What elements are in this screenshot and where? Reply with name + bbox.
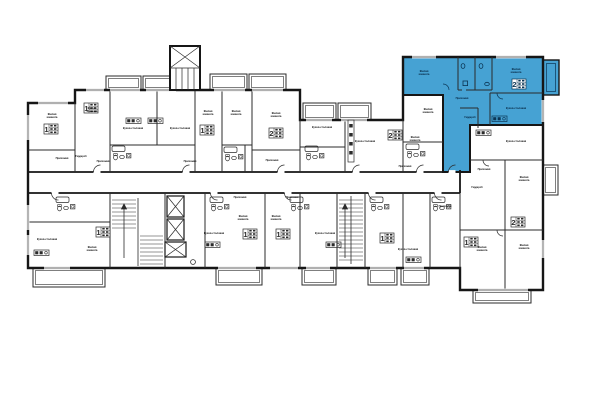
table-area-value (206, 129, 208, 131)
room-label-hallway: Прихожая (456, 96, 469, 100)
room-label-hallway: Прихожая (266, 158, 279, 162)
table-area-value (275, 129, 277, 131)
room-label-kitchen-dining: Кухня-столовая (312, 125, 333, 129)
room-label-living-room: комната (87, 249, 98, 252)
sink-icon (64, 206, 69, 209)
table-area-value (518, 83, 520, 85)
table-area-value (518, 87, 520, 89)
room-label-hallway: Прихожая (56, 156, 69, 160)
room-label-kitchen-dining: Кухня-столовая (506, 139, 527, 143)
stove-icon (332, 243, 335, 246)
table-area-value (386, 234, 388, 236)
room-label-wardrobe: Гардероб (471, 186, 483, 189)
table-area-value (282, 230, 284, 232)
stove-icon (149, 119, 152, 122)
corridor-walls (28, 170, 460, 193)
table-area-value (390, 234, 392, 236)
door-gap (369, 191, 376, 195)
washer-drum-icon (71, 205, 74, 208)
apartment-number: 2 (511, 218, 515, 227)
bathtub-icon (112, 146, 125, 152)
table-area-value (253, 233, 255, 235)
sink-icon (218, 206, 223, 209)
apartment-number: 1 (44, 125, 48, 134)
table-area-value (286, 230, 288, 232)
table-area-value (102, 231, 104, 233)
room-label-hallway: Прихожая (439, 204, 452, 208)
table-area-value (54, 132, 56, 134)
table-area-value (210, 129, 212, 131)
table-area-value (517, 218, 519, 220)
table-area-value (282, 233, 284, 235)
table-area-value (210, 126, 212, 128)
washer-drum-icon (305, 205, 308, 208)
table-area-value (94, 104, 96, 106)
room-label-kitchen-dining: Кухня-столовая (37, 237, 58, 241)
table-area-value (398, 138, 400, 140)
table-area-value (102, 228, 104, 230)
table-area-value (50, 125, 52, 127)
room-label-kitchen-dining: Кухня-столовая (355, 139, 376, 143)
room-label-kitchen-dining: Кухня-столовая (170, 126, 191, 130)
sink-icon (313, 155, 318, 158)
washer-drum-icon (421, 152, 424, 155)
table-area-value (386, 237, 388, 239)
room-label-living-room: комната (519, 247, 530, 250)
table-area-value (106, 228, 108, 230)
stove-icon (493, 117, 496, 120)
apartment-number: 2 (388, 131, 392, 140)
door-swing (497, 230, 503, 236)
stove-icon (35, 251, 38, 254)
balcony (33, 268, 105, 287)
door-gap (52, 191, 59, 195)
table-area-value (517, 225, 519, 227)
door-gap (449, 170, 456, 174)
room-label-kitchen-dining: Кухня-столовая (123, 126, 144, 130)
table-area-value (470, 238, 472, 240)
stove-icon (482, 131, 485, 134)
kitchen-sink-icon (487, 131, 490, 134)
room-label-hallway: Прихожая (478, 167, 491, 171)
kitchen-sink-icon (417, 258, 420, 261)
stove-icon (407, 258, 410, 261)
stove-icon (349, 142, 353, 146)
sink-icon (414, 153, 419, 156)
stove-icon (349, 124, 353, 128)
table-area-value (522, 80, 524, 82)
room-label-living-room: комната (511, 71, 522, 74)
sink-icon (378, 206, 383, 209)
table-area-value (386, 241, 388, 243)
washer-drum-icon (320, 154, 323, 157)
table-area-value (286, 237, 288, 239)
table-area-value (279, 136, 281, 138)
table-area-value (249, 233, 251, 235)
table-area-value (249, 237, 251, 239)
room-label-living-room: комната (87, 110, 98, 113)
stove-icon (127, 119, 130, 122)
table-area-value (279, 132, 281, 134)
room-label-kitchen-dining: Кухня-столовая (506, 106, 527, 110)
washer-drum-icon (225, 205, 228, 208)
washer-drum-icon (385, 205, 388, 208)
door-gap (417, 170, 424, 174)
table-area-value (390, 237, 392, 239)
room-label-kitchen-dining: Кухня-столовая (315, 231, 336, 235)
sink-icon (232, 156, 237, 159)
stove-icon (40, 251, 43, 254)
table-area-value (50, 128, 52, 130)
stove-icon (498, 117, 501, 120)
table-area-value (210, 133, 212, 135)
table-area-value (106, 235, 108, 237)
table-area-value (521, 221, 523, 223)
door-gap (183, 170, 190, 174)
balcony (473, 290, 531, 303)
room-label-living-room: комната (47, 116, 58, 119)
table-area-value (470, 245, 472, 247)
door-gap (353, 170, 360, 174)
bathtub-icon (432, 197, 445, 203)
apartment-number: 1 (243, 230, 247, 239)
table-area-value (394, 134, 396, 136)
kitchen-sink-icon (216, 243, 219, 246)
table-area-value (249, 230, 251, 232)
door-gap (285, 191, 292, 195)
table-area-value (90, 104, 92, 106)
room-label-kitchen-dining: Кухня-столовая (398, 247, 419, 251)
bathtub-icon (406, 144, 419, 150)
room-label-living-room: комната (231, 113, 242, 116)
room-label-living-room: комната (423, 111, 434, 114)
table-area-value (521, 218, 523, 220)
room-label-living-room: комната (203, 113, 214, 116)
floor-plan-svg: 111222111112 ЖилаякомнатаЖилаякомнатаЖил… (0, 0, 600, 400)
stove-icon (412, 258, 415, 261)
room-label-wardrobe: Гардероб (75, 155, 87, 158)
table-area-value (522, 87, 524, 89)
room-label-living-room: комната (477, 249, 488, 252)
door-gap (94, 170, 101, 174)
table-area-value (286, 233, 288, 235)
table-area-value (54, 128, 56, 130)
room-label-living-room: комната (419, 73, 430, 76)
table-area-value (106, 231, 108, 233)
room-label-hallway: Прихожая (286, 195, 299, 199)
apartment-number: 1 (464, 238, 468, 247)
table-area-value (390, 241, 392, 243)
floor-plan-page: 111222111112 ЖилаякомнатаЖилаякомнатаЖил… (0, 0, 600, 400)
table-area-value (474, 241, 476, 243)
room-label-hallway: Прихожая (234, 195, 247, 199)
table-area-value (279, 129, 281, 131)
bathtub-icon (224, 147, 237, 153)
floor-drain-symbol (191, 260, 196, 265)
room-label-hallway: Прихожая (184, 159, 197, 163)
table-area-value (521, 225, 523, 227)
bathtub-icon (370, 197, 383, 203)
stove-icon (327, 243, 330, 246)
table-area-value (394, 131, 396, 133)
table-area-value (275, 132, 277, 134)
apartment-number: 1 (96, 228, 100, 237)
table-area-value (206, 126, 208, 128)
door-gap (278, 170, 285, 174)
washer-drum-icon (127, 154, 130, 157)
table-area-value (394, 138, 396, 140)
table-area-value (522, 83, 524, 85)
stove-icon (211, 243, 214, 246)
table-area-value (398, 134, 400, 136)
table-area-value (253, 237, 255, 239)
stove-icon (154, 119, 157, 122)
kitchen-sink-icon (137, 119, 140, 122)
room-label-wardrobe: Гардероб (464, 116, 476, 119)
door-swing (483, 160, 489, 166)
room-label-kitchen-dining: Кухня-столовая (204, 231, 225, 235)
stove-icon (206, 243, 209, 246)
table-area-value (275, 136, 277, 138)
room-label-living-room: комната (410, 139, 421, 142)
kitchen-sink-icon (45, 251, 48, 254)
stove-icon (349, 133, 353, 137)
table-area-value (102, 235, 104, 237)
table-area-value (518, 80, 520, 82)
table-area-value (50, 132, 52, 134)
highlighted-apartment-balcony (543, 60, 559, 95)
table-area-value (470, 241, 472, 243)
room-label-hallway: Прихожая (97, 159, 110, 163)
stove-icon (132, 119, 135, 122)
apartment-number: 1 (276, 230, 280, 239)
room-label-living-room: комната (271, 115, 282, 118)
sink-icon (120, 155, 125, 158)
table-area-value (206, 133, 208, 135)
stove-icon (477, 131, 480, 134)
table-area-value (253, 230, 255, 232)
table-area-value (54, 125, 56, 127)
apartment-number: 2 (512, 80, 516, 89)
room-label-living-room: комната (271, 218, 282, 221)
room-label-living-room: комната (519, 179, 530, 182)
kitchen-sink-icon (159, 119, 162, 122)
door-gap (435, 191, 442, 195)
table-area-value (282, 237, 284, 239)
table-area-value (398, 131, 400, 133)
table-area-value (474, 245, 476, 247)
stove-icon (349, 151, 353, 155)
apartment-number: 1 (380, 234, 384, 243)
apartment-number: 1 (200, 126, 204, 135)
table-area-value (517, 221, 519, 223)
table-area-value (474, 238, 476, 240)
apartment-number: 2 (269, 129, 273, 138)
balcony (106, 76, 141, 90)
room-label-hallway: Прихожая (399, 164, 412, 168)
washer-drum-icon (239, 155, 242, 158)
room-label-living-room: комната (238, 218, 249, 221)
door-gap (211, 191, 218, 195)
